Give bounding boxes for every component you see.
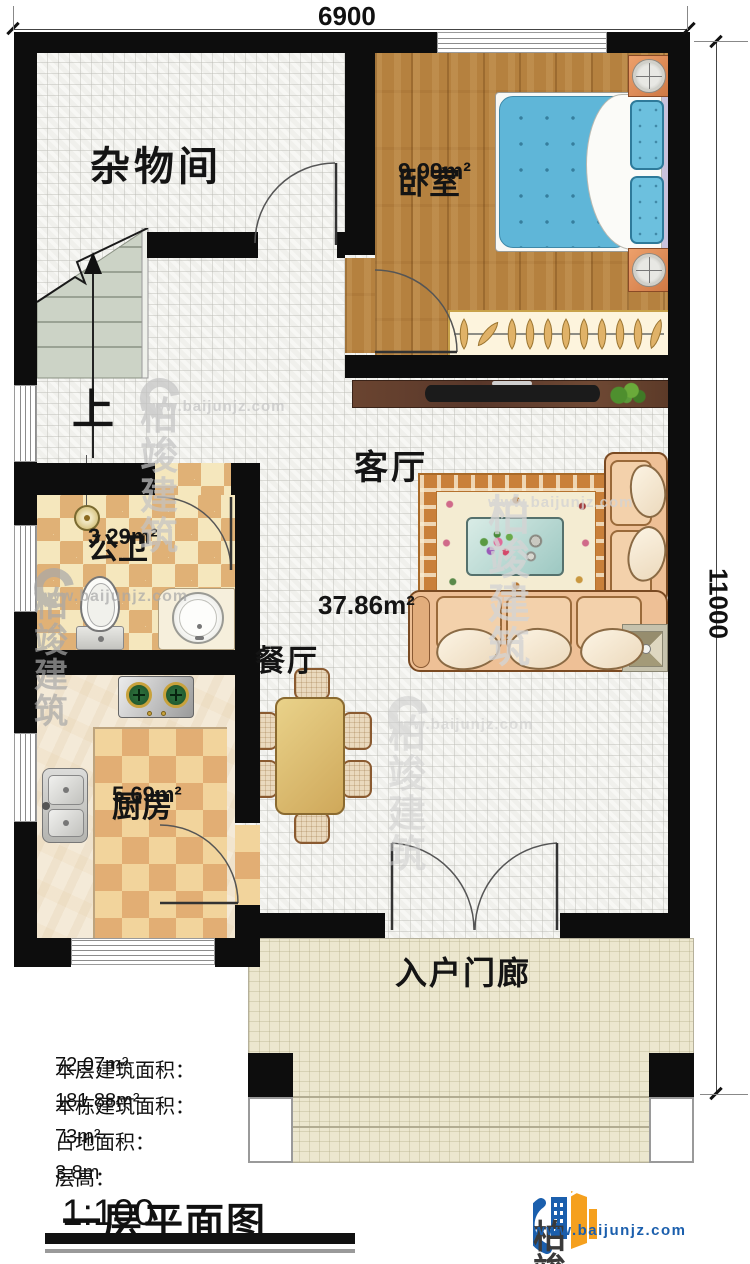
porch-step-edge [293, 1096, 649, 1098]
room-label-dining: 餐厅 [255, 636, 319, 680]
dining-table [275, 697, 345, 815]
wall [345, 53, 375, 255]
window [14, 385, 37, 462]
lamp-icon [633, 60, 665, 92]
kitchen-floor [93, 727, 227, 938]
title-underline [45, 1233, 355, 1244]
bathroom-door-threshold [155, 463, 231, 495]
faucet-icon [42, 802, 50, 810]
room-label-porch: 入户门廊 [395, 948, 531, 994]
dimension-right-value: 11000 [703, 559, 734, 649]
porch-column [649, 1097, 694, 1163]
title-underline-2 [45, 1249, 355, 1253]
room-area-bedroom: 9.99m² [398, 158, 471, 185]
coffee-table [466, 517, 564, 576]
bathroom-sink [172, 592, 224, 644]
brand-url: www.baijunjz.com [533, 1222, 686, 1239]
wall [14, 938, 71, 967]
wall [37, 650, 235, 675]
nightstand [628, 248, 670, 292]
room-area-bathroom: 3.29m² [88, 524, 158, 550]
tv-icon [425, 385, 600, 402]
dining-chair [294, 812, 330, 844]
bed-pillow [630, 176, 664, 244]
kitchen-sink [42, 768, 88, 843]
room-label-living: 客厅 [354, 440, 428, 489]
sofa-right [604, 452, 668, 604]
wall [14, 53, 37, 965]
wall [337, 232, 345, 258]
burner-icon [126, 682, 152, 708]
bed-pillow [630, 100, 664, 170]
window [437, 32, 607, 53]
hangers-icon [450, 312, 668, 356]
extension-line [13, 6, 14, 30]
wall [345, 355, 690, 378]
wall [215, 938, 250, 967]
extension-line [700, 1094, 748, 1095]
wall [14, 463, 155, 495]
lamp-icon [633, 254, 665, 286]
wall [560, 913, 690, 938]
extension-line [687, 6, 688, 30]
dining-chair [342, 760, 372, 798]
stairs-up-label: 上 [72, 376, 114, 437]
porch-pillar [649, 1053, 694, 1097]
floor-plan: 上 [0, 0, 750, 1264]
window [14, 525, 37, 612]
toilet [80, 576, 120, 632]
room-label-storage: 杂物间 [90, 134, 222, 192]
burner-icon [163, 682, 189, 708]
wardrobe [448, 310, 670, 358]
porch-step-edge [293, 1126, 649, 1128]
stove [118, 676, 194, 718]
room-area-kitchen: 5.69m² [112, 782, 182, 808]
wall [607, 32, 690, 53]
plant-icon [606, 382, 652, 406]
dimension-top-value: 6900 [318, 1, 376, 32]
porch-column [248, 1097, 293, 1163]
brand-logo: 柏竣建筑 www.baijunjz.com [533, 1185, 599, 1255]
wall [248, 913, 385, 938]
wall [668, 53, 690, 938]
nightstand [628, 55, 670, 97]
window [71, 938, 215, 965]
bedroom-door-threshold [345, 258, 375, 353]
kitchen-door-threshold [235, 825, 260, 905]
dining-chair [342, 712, 372, 750]
window [14, 733, 37, 822]
extension-line [694, 41, 748, 42]
wall [231, 463, 260, 495]
porch-pillar [248, 1053, 293, 1097]
wall [14, 32, 437, 53]
wall [147, 232, 258, 258]
room-area-living: 37.86m² [318, 590, 415, 621]
